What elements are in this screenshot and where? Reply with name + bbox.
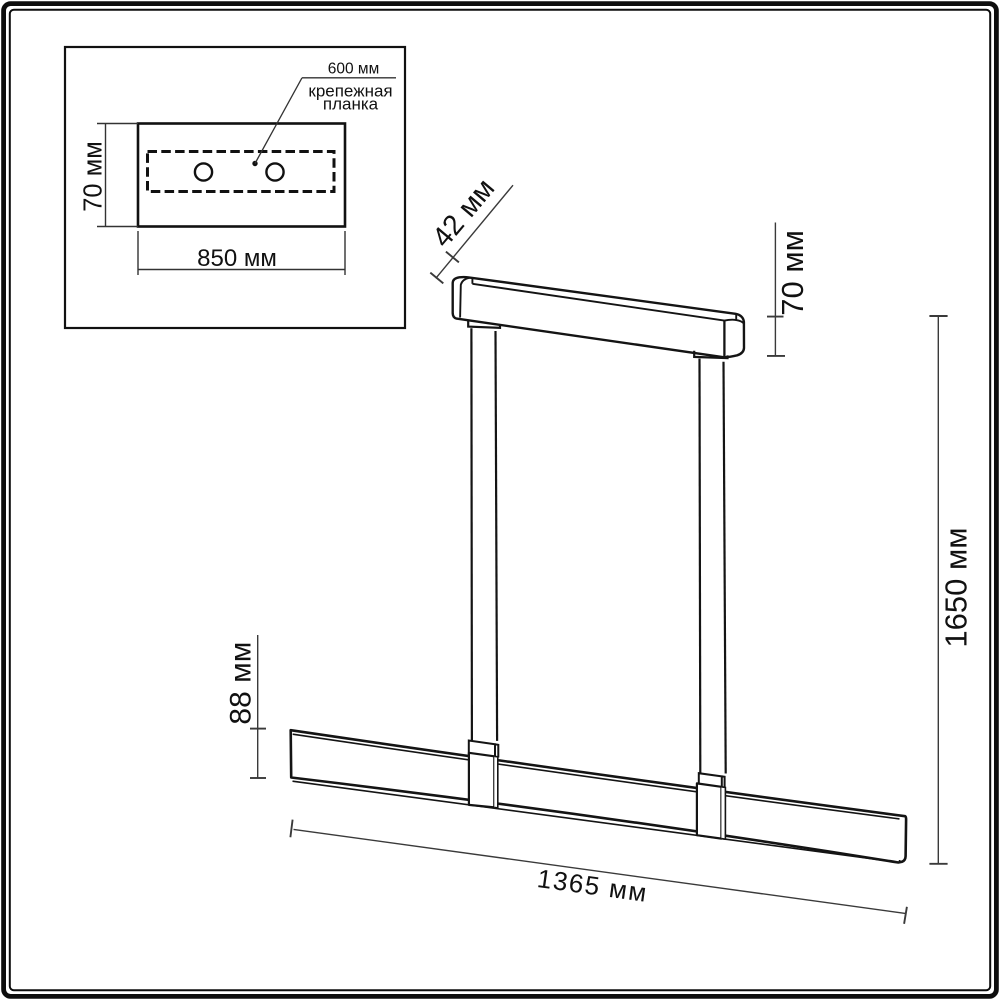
- svg-text:600 мм: 600 мм: [328, 61, 379, 78]
- svg-text:70 мм: 70 мм: [775, 230, 810, 316]
- svg-text:850 мм: 850 мм: [197, 245, 277, 272]
- svg-text:1650 мм: 1650 мм: [939, 527, 974, 647]
- svg-text:планка: планка: [323, 95, 379, 114]
- svg-text:70 мм: 70 мм: [79, 141, 107, 212]
- svg-text:88 мм: 88 мм: [224, 642, 257, 725]
- svg-text:1365 мм: 1365 мм: [535, 863, 649, 908]
